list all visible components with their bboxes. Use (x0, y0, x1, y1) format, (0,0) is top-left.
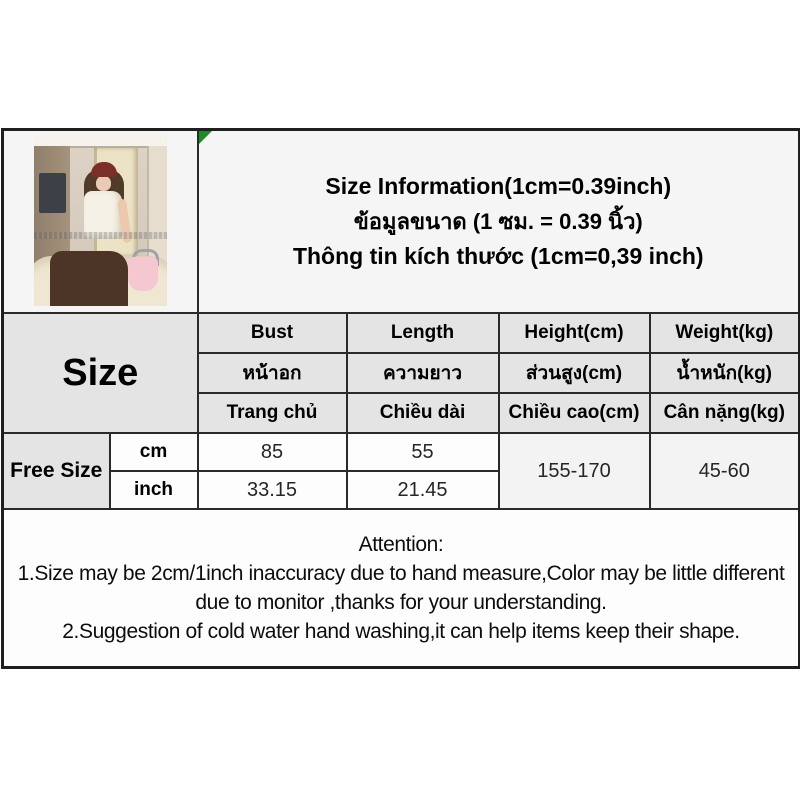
green-corner-marker-icon (199, 131, 212, 144)
size-info-title: Size Information(1cm=0.39inch) ข้อมูลขนา… (199, 169, 799, 274)
unit-inch-label: inch (110, 471, 198, 509)
attention-heading: Attention: (4, 530, 798, 559)
header-length-en: Length (347, 313, 499, 353)
header-height-th: ส่วนสูง(cm) (499, 353, 650, 393)
bust-cm-value: 85 (198, 433, 347, 471)
attention-note-2: 2.Suggestion of cold water hand washing,… (4, 617, 798, 646)
bust-inch-value: 33.15 (198, 471, 347, 509)
header-weight-en: Weight(kg) (650, 313, 800, 353)
size-corner-label: Size (3, 313, 198, 433)
photo-pink-bag (128, 257, 158, 291)
size-chart-image: Size Information(1cm=0.39inch) ข้อมูลขนา… (0, 0, 800, 800)
photo-model-cap (91, 162, 117, 177)
length-inch-value: 21.45 (347, 471, 499, 509)
length-cm-value: 55 (347, 433, 499, 471)
header-length-vi: Chiều dài (347, 393, 499, 433)
unit-cm-label: cm (110, 433, 198, 471)
header-weight-th: น้ำหนัก(kg) (650, 353, 800, 393)
free-size-label: Free Size (3, 433, 110, 509)
title-cell: Size Information(1cm=0.39inch) ข้อมูลขนา… (198, 130, 800, 314)
product-photo (34, 135, 167, 306)
header-height-vi: Chiều cao(cm) (499, 393, 650, 433)
title-english: Size Information(1cm=0.39inch) (199, 169, 799, 204)
title-thai: ข้อมูลขนาด (1 ซม. = 0.39 นิ้ว) (199, 204, 799, 239)
title-vietnamese: Thông tin kích thước (1cm=0,39 inch) (199, 239, 799, 274)
size-table: Size Information(1cm=0.39inch) ข้อมูลขนา… (1, 128, 800, 669)
photo-model-pants (50, 251, 128, 306)
header-bust-en: Bust (198, 313, 347, 353)
weight-range-value: 45-60 (650, 433, 800, 509)
attention-note-1: 1.Size may be 2cm/1inch inaccuracy due t… (4, 559, 798, 617)
header-height-en: Height(cm) (499, 313, 650, 353)
photo-model-face (96, 176, 111, 191)
header-bust-vi: Trang chủ (198, 393, 347, 433)
header-bust-th: หน้าอก (198, 353, 347, 393)
photo-watermark-band (34, 232, 167, 239)
header-weight-vi: Cân nặng(kg) (650, 393, 800, 433)
header-length-th: ความยาว (347, 353, 499, 393)
attention-cell: Attention: 1.Size may be 2cm/1inch inacc… (3, 509, 800, 668)
product-photo-cell (3, 130, 198, 314)
height-range-value: 155-170 (499, 433, 650, 509)
photo-tv (39, 173, 66, 213)
